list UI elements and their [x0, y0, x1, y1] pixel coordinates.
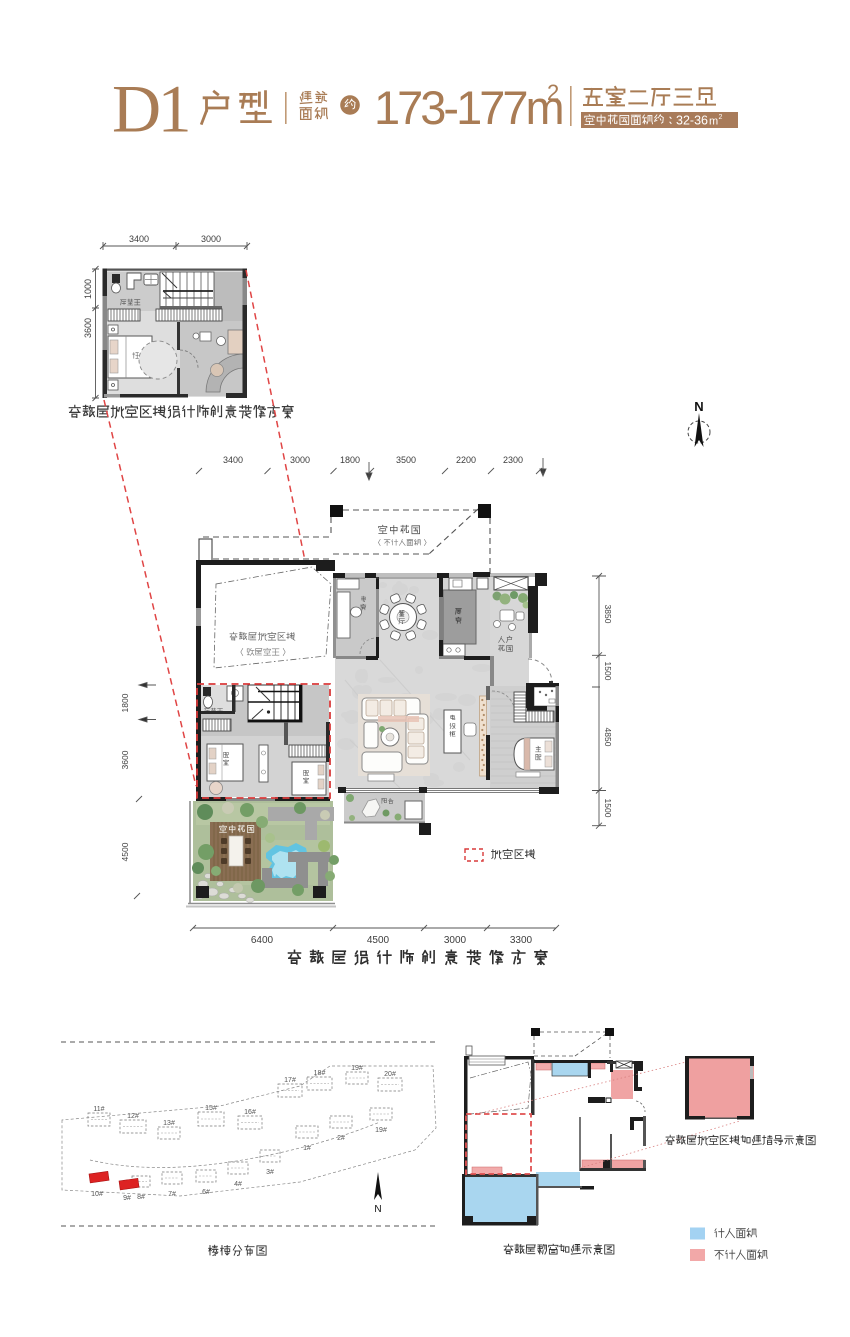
- svg-text:1800: 1800: [340, 455, 360, 465]
- svg-text:8#: 8#: [137, 1194, 145, 1201]
- svg-text:32-36: 32-36: [676, 114, 708, 128]
- svg-text:3600: 3600: [120, 750, 130, 769]
- svg-text:N: N: [694, 399, 703, 414]
- svg-text:19#: 19#: [375, 1127, 387, 1134]
- svg-text:N: N: [374, 1204, 381, 1215]
- svg-text:3850: 3850: [603, 605, 613, 624]
- svg-text:7#: 7#: [168, 1191, 176, 1198]
- svg-text:1500: 1500: [603, 662, 613, 681]
- svg-text:4850: 4850: [603, 728, 613, 747]
- svg-text:13#: 13#: [163, 1120, 175, 1127]
- svg-text:3300: 3300: [510, 935, 533, 946]
- svg-text:2300: 2300: [503, 455, 523, 465]
- svg-text:3400: 3400: [129, 234, 149, 244]
- svg-text:15#: 15#: [205, 1105, 217, 1112]
- svg-text:2: 2: [547, 80, 559, 105]
- svg-text:20#: 20#: [384, 1071, 396, 1078]
- svg-text:3#: 3#: [266, 1169, 274, 1176]
- svg-text:6400: 6400: [251, 935, 274, 946]
- svg-text:2200: 2200: [456, 455, 476, 465]
- svg-text:m: m: [709, 116, 718, 128]
- svg-text:4500: 4500: [367, 935, 390, 946]
- svg-text:1800: 1800: [120, 693, 130, 712]
- svg-text:173-177m: 173-177m: [374, 81, 562, 134]
- svg-text:D1: D1: [112, 71, 188, 147]
- svg-text:17#: 17#: [284, 1077, 296, 1084]
- svg-text:9#: 9#: [123, 1195, 131, 1202]
- svg-text:3400: 3400: [223, 455, 243, 465]
- svg-text:3600: 3600: [83, 318, 93, 338]
- svg-text:1000: 1000: [83, 279, 93, 299]
- svg-text:2: 2: [719, 114, 723, 121]
- svg-text:3500: 3500: [396, 455, 416, 465]
- svg-text:3000: 3000: [290, 455, 310, 465]
- svg-text:16#: 16#: [244, 1109, 256, 1116]
- svg-text:3000: 3000: [444, 935, 467, 946]
- svg-text:4500: 4500: [120, 842, 130, 861]
- svg-text:1500: 1500: [603, 799, 613, 818]
- svg-text:3000: 3000: [201, 234, 221, 244]
- svg-text:4#: 4#: [234, 1181, 242, 1188]
- svg-text:11#: 11#: [93, 1106, 104, 1113]
- svg-text:6#: 6#: [202, 1189, 210, 1196]
